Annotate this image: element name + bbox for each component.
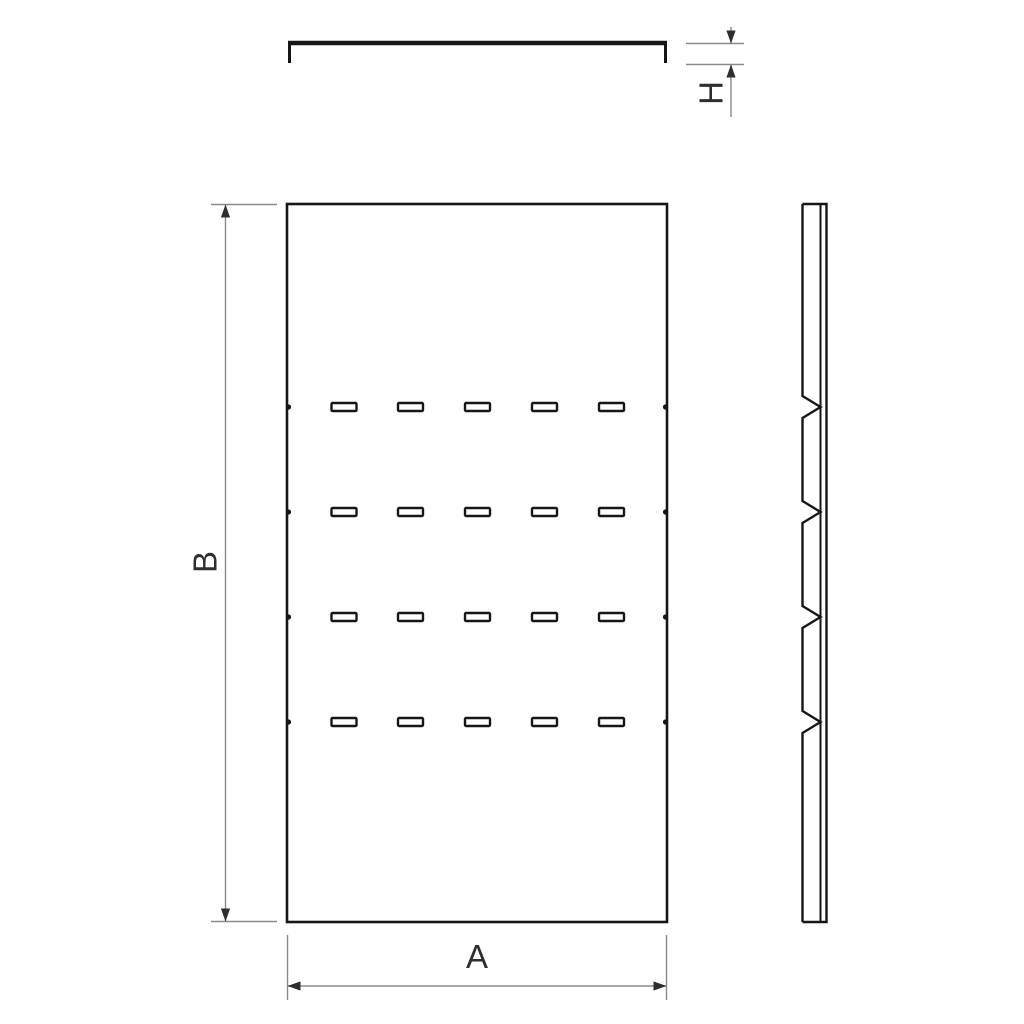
dimension-b: B — [187, 205, 278, 922]
dimension-a: A — [288, 935, 667, 1000]
bend-mark-right-r2 — [663, 509, 668, 514]
slot-r1-c4 — [532, 403, 557, 411]
bend-mark-left-r4 — [286, 719, 291, 724]
slot-r2-c1 — [332, 508, 357, 516]
slot-r1-c5 — [599, 403, 624, 411]
slot-r4-c4 — [532, 718, 557, 726]
h-arrow-bottom — [726, 65, 735, 78]
bend-mark-right-r4 — [663, 719, 668, 724]
front-view-plate — [286, 204, 668, 922]
slot-r1-c3 — [465, 403, 490, 411]
slot-r1-c2 — [398, 403, 423, 411]
technical-drawing: H B A — [0, 0, 1024, 1024]
slot-r2-c5 — [599, 508, 624, 516]
slot-r2-c4 — [532, 508, 557, 516]
dimension-h: H — [686, 27, 744, 117]
bend-mark-right-r1 — [663, 404, 668, 409]
dimension-label-b: B — [187, 551, 224, 573]
side-profile-outer — [803, 204, 827, 922]
b-arrow-top — [221, 205, 230, 218]
a-arrow-right — [654, 981, 667, 990]
slot-r3-c3 — [465, 613, 490, 621]
drawing-canvas: H B A — [0, 0, 1024, 1024]
dimension-label-a: A — [466, 938, 488, 975]
slot-r4-c5 — [599, 718, 624, 726]
b-arrow-bottom — [221, 909, 230, 922]
side-profile-notched-edge — [803, 204, 821, 922]
bend-mark-left-r1 — [286, 404, 291, 409]
h-arrow-top — [726, 31, 735, 44]
slot-r3-c5 — [599, 613, 624, 621]
slot-r2-c2 — [398, 508, 423, 516]
plate-outline — [287, 204, 667, 922]
slot-r3-c2 — [398, 613, 423, 621]
slot-r3-c1 — [332, 613, 357, 621]
bend-mark-left-r2 — [286, 509, 291, 514]
slot-r3-c4 — [532, 613, 557, 621]
slot-r4-c3 — [465, 718, 490, 726]
top-view-channel-profile — [288, 43, 667, 63]
slot-r1-c1 — [332, 403, 357, 411]
slot-r4-c1 — [332, 718, 357, 726]
dimension-label-h: H — [693, 81, 730, 105]
a-arrow-left — [288, 981, 301, 990]
slot-r4-c2 — [398, 718, 423, 726]
bend-mark-left-r3 — [286, 614, 291, 619]
bend-mark-right-r3 — [663, 614, 668, 619]
side-view-notched-profile — [803, 204, 827, 922]
slot-r2-c3 — [465, 508, 490, 516]
